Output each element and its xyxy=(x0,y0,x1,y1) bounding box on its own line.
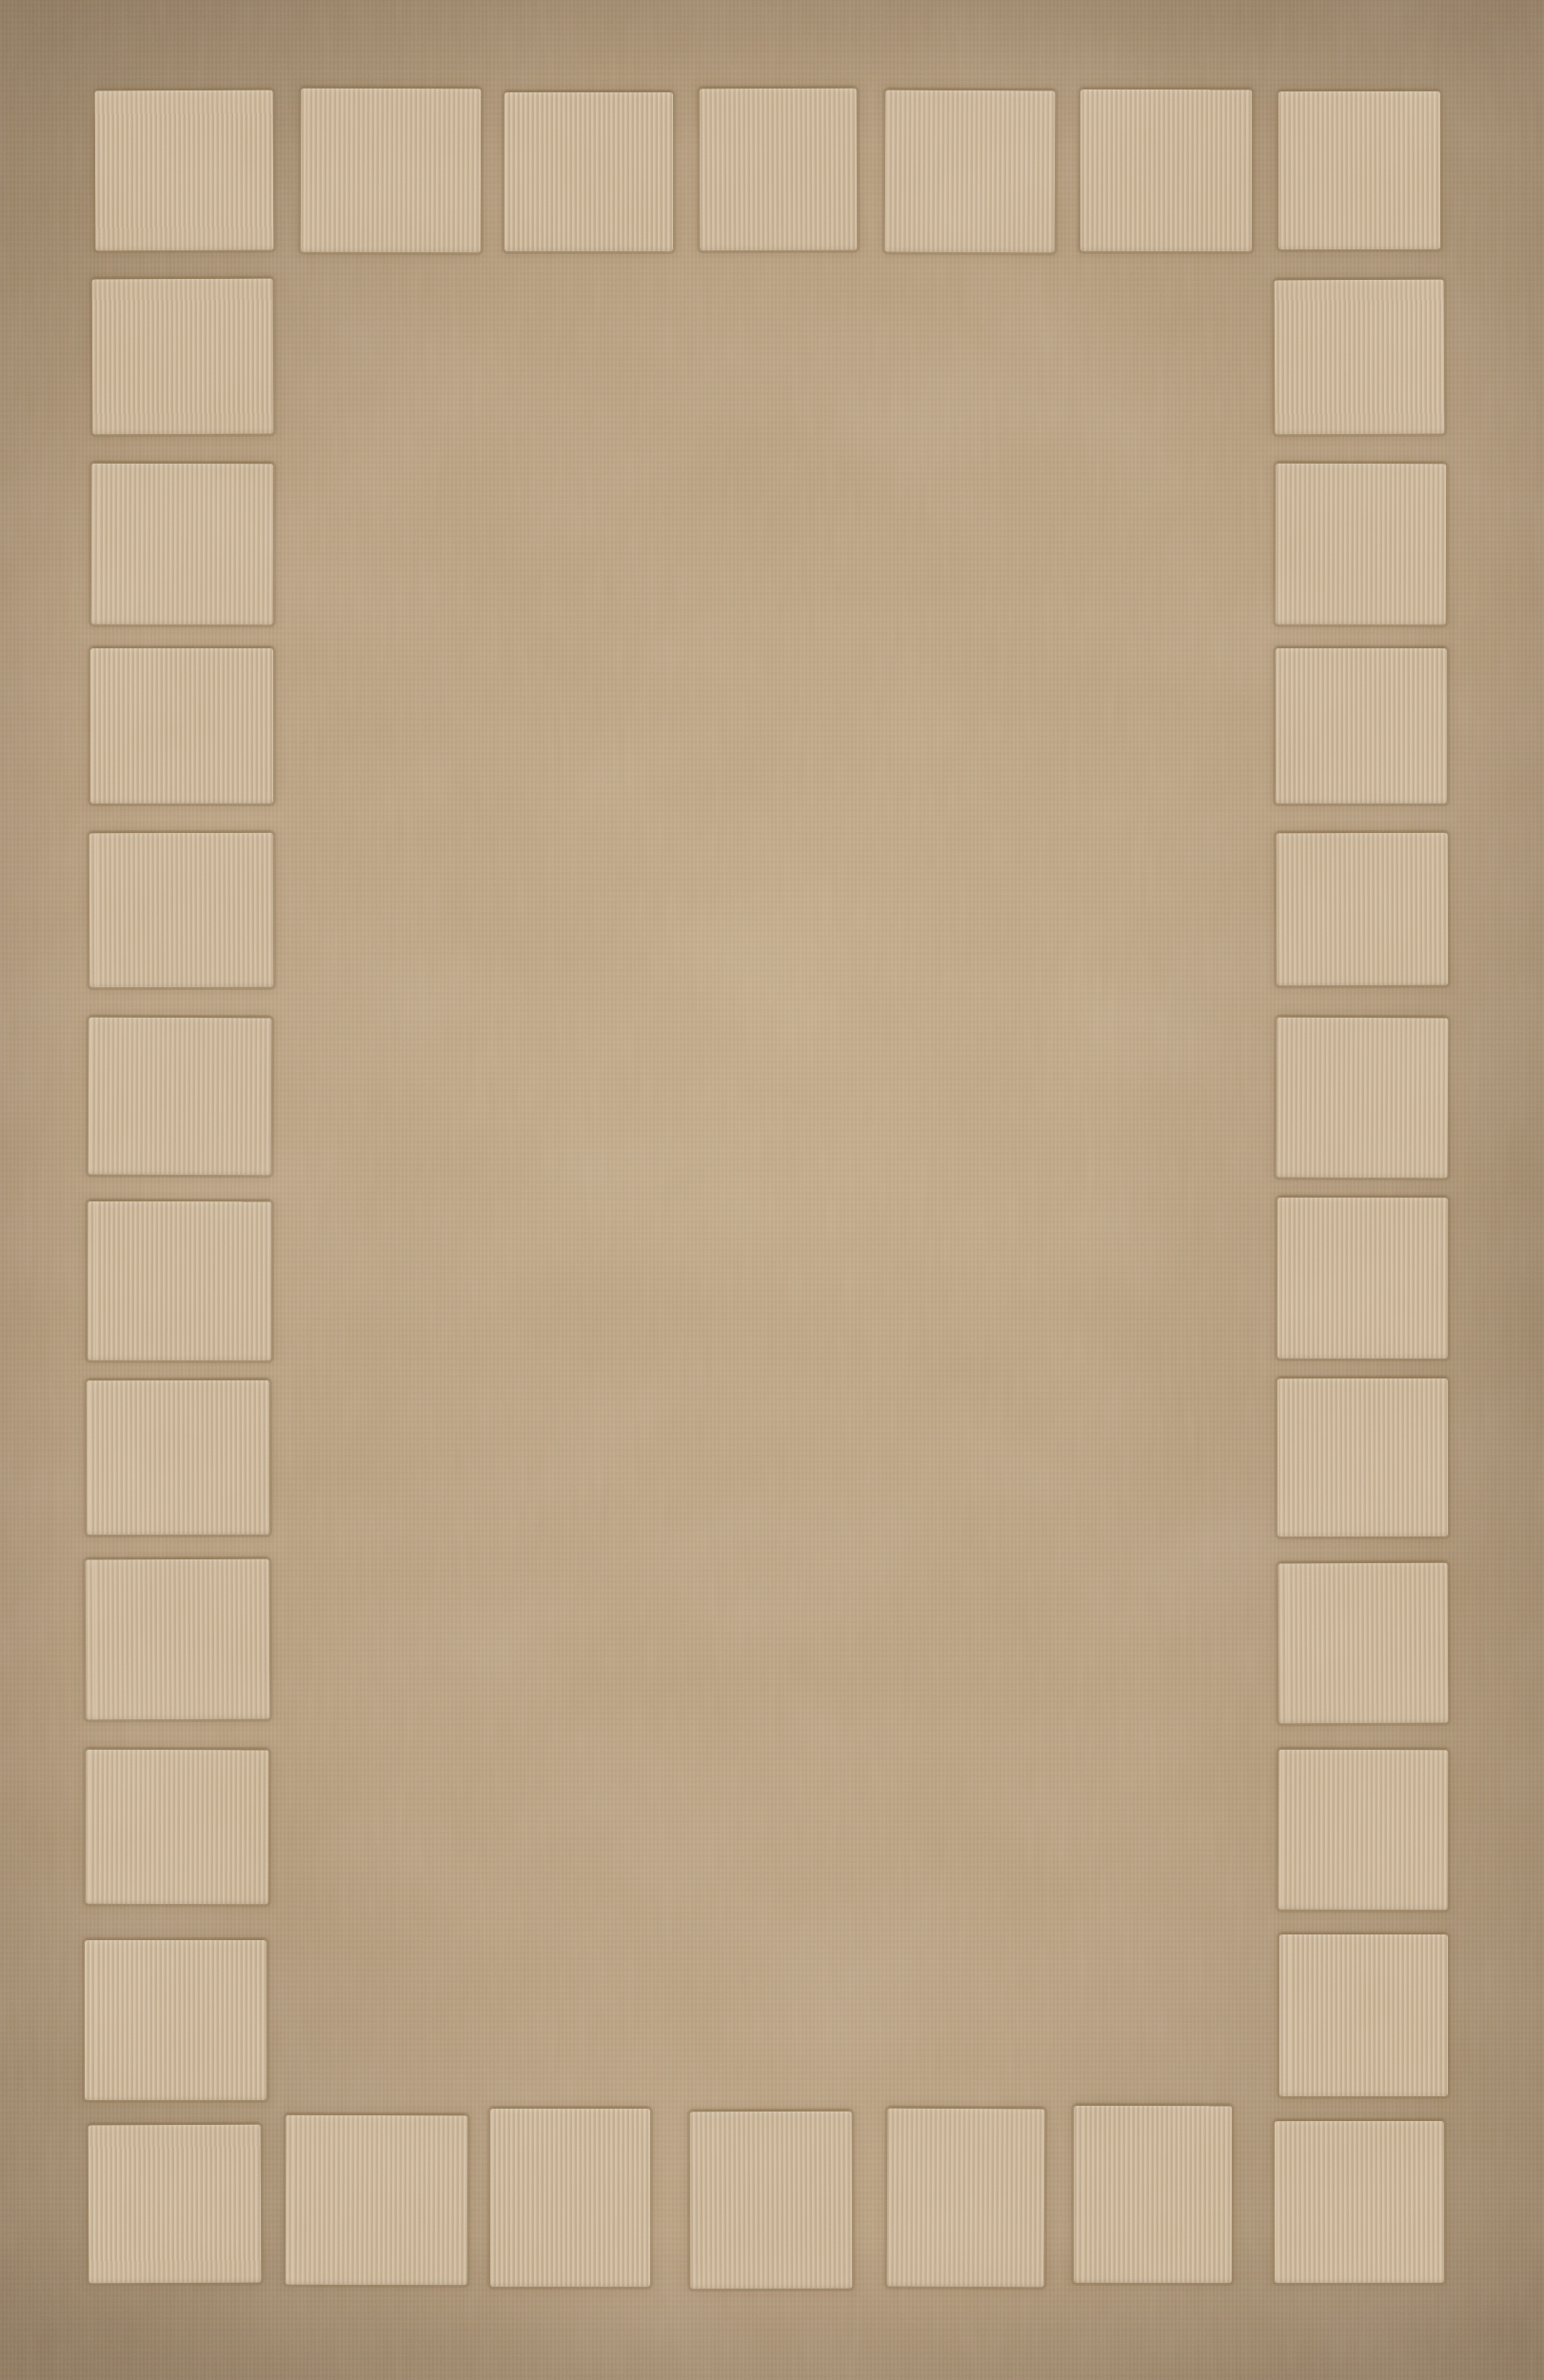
border-square-bottom-1 xyxy=(89,2125,262,2284)
border-square-left-4 xyxy=(89,833,273,988)
border-square-left-1 xyxy=(92,279,274,435)
border-square-left-9 xyxy=(86,1750,268,1905)
border-square-left-8 xyxy=(86,1559,270,1720)
border-square-top-1 xyxy=(95,90,274,251)
border-square-right-10 xyxy=(1279,1934,1448,2096)
border-square-bottom-4 xyxy=(690,2112,853,2289)
border-square-right-1 xyxy=(1275,280,1445,435)
border-square-right-7 xyxy=(1277,1378,1448,1537)
border-square-bottom-3 xyxy=(490,2109,650,2287)
border-square-left-2 xyxy=(91,464,273,625)
border-square-left-5 xyxy=(89,1018,272,1176)
border-square-top-3 xyxy=(505,92,673,251)
border-square-bottom-6 xyxy=(1074,2106,1232,2283)
border-square-top-4 xyxy=(700,89,857,250)
border-square-right-6 xyxy=(1277,1198,1448,1359)
rug-product-photo xyxy=(0,0,1544,2380)
border-square-right-9 xyxy=(1278,1750,1448,1910)
border-square-top-6 xyxy=(1080,89,1252,251)
border-square-right-5 xyxy=(1277,1018,1449,1179)
border-square-right-4 xyxy=(1277,833,1448,986)
border-square-left-10 xyxy=(85,1940,267,2100)
border-square-bottom-5 xyxy=(887,2109,1045,2288)
border-square-right-8 xyxy=(1278,1563,1449,1724)
border-square-top-7 xyxy=(1278,91,1440,249)
border-square-bottom-2 xyxy=(286,2115,467,2286)
border-square-right-3 xyxy=(1276,648,1447,803)
border-square-top-5 xyxy=(885,90,1056,253)
border-square-left-3 xyxy=(90,648,273,803)
border-square-bottom-7 xyxy=(1275,2121,1444,2283)
border-square-top-2 xyxy=(301,89,481,253)
border-square-left-7 xyxy=(87,1380,269,1535)
border-square-right-2 xyxy=(1276,464,1446,625)
border-square-left-6 xyxy=(88,1201,271,1360)
rug-border-squares xyxy=(0,0,1544,2380)
